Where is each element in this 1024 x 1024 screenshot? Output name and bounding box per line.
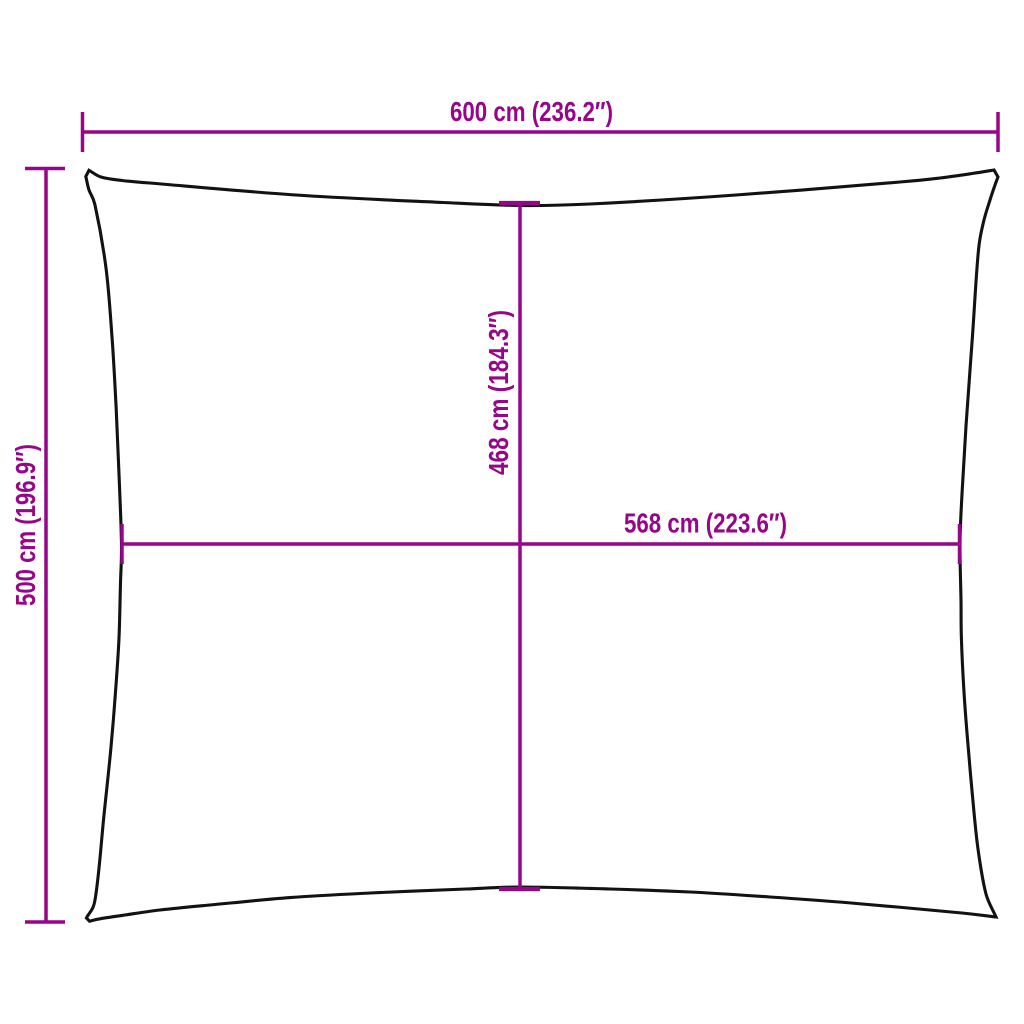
svg-text:500 cm (196.9″): 500 cm (196.9″) (10, 444, 41, 606)
svg-text:600 cm (236.2″): 600 cm (236.2″) (450, 96, 613, 127)
svg-text:468 cm (184.3″): 468 cm (184.3″) (483, 310, 514, 475)
svg-text:568 cm (223.6″): 568 cm (223.6″) (624, 508, 787, 539)
